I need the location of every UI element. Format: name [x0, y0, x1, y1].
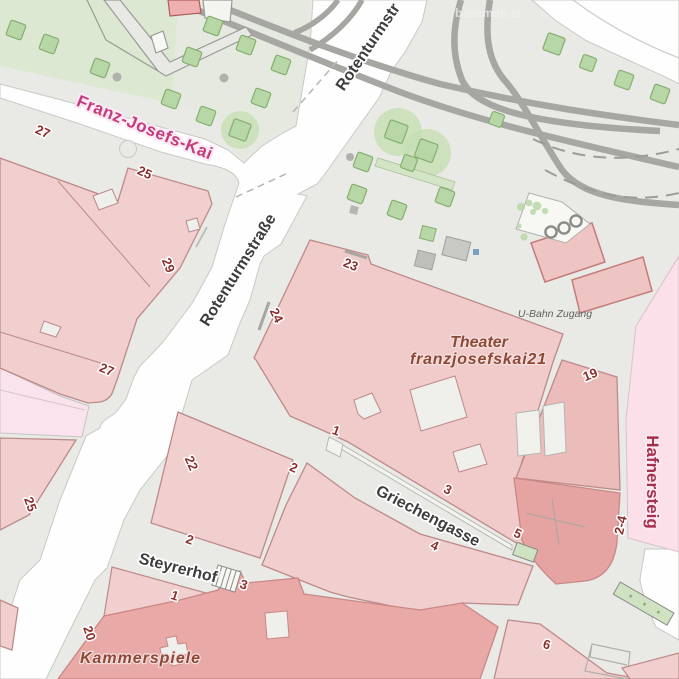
svg-text:Theater: Theater	[450, 334, 509, 351]
svg-text:Kammerspiele: Kammerspiele	[80, 650, 200, 667]
svg-text:Hafnersteig: Hafnersteig	[643, 435, 662, 529]
svg-text:franzjosefskai21: franzjosefskai21	[410, 351, 546, 368]
svg-text:basemap.at: basemap.at	[455, 6, 521, 20]
svg-text:U-Bahn Zugang: U-Bahn Zugang	[518, 308, 592, 320]
